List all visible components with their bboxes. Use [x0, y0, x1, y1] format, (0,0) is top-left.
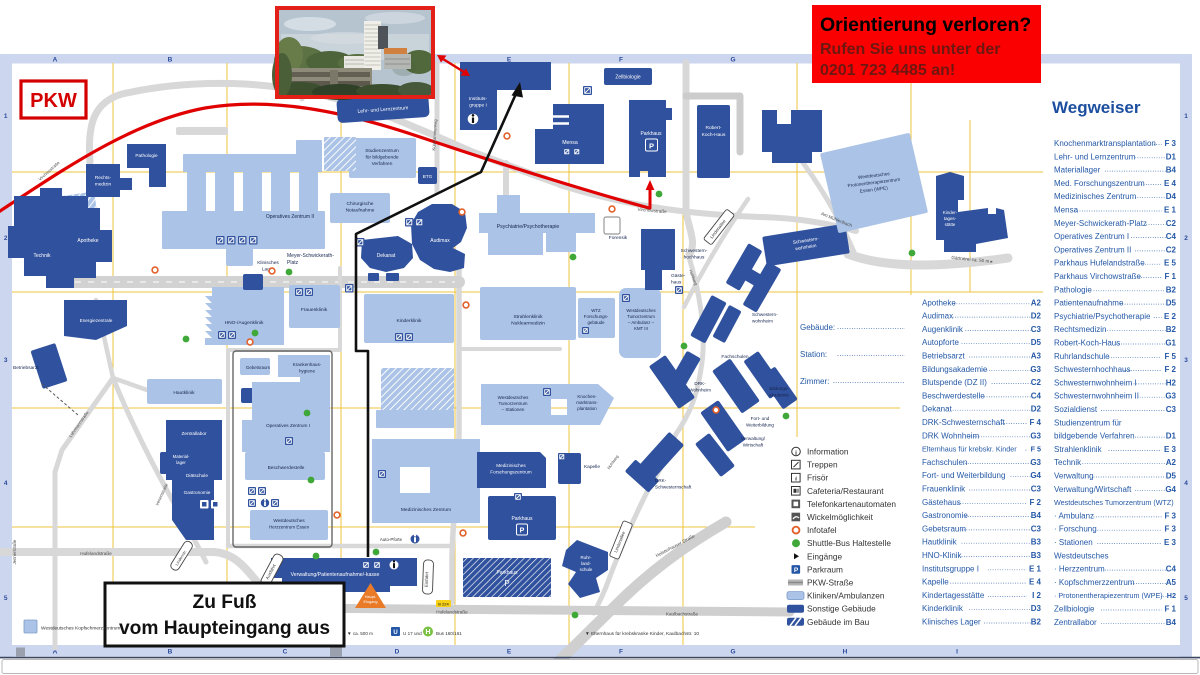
svg-text:Parkhaus: Parkhaus — [511, 516, 533, 522]
svg-text:Audimax: Audimax — [922, 312, 953, 321]
svg-text:▼ ca. 500 m: ▼ ca. 500 m — [347, 631, 373, 636]
svg-text:· Ambulanz: · Ambulanz — [1054, 511, 1094, 520]
svg-text:Auto-Pforte: Auto-Pforte — [380, 537, 403, 542]
svg-text:E: E — [507, 649, 512, 656]
svg-text:▼ Elternhaus für krebskranke K: ▼ Elternhaus für krebskranke Kinder, Kau… — [585, 631, 699, 637]
svg-text:G3: G3 — [1030, 458, 1041, 467]
svg-text:Energiezentrale: Energiezentrale — [80, 318, 113, 323]
svg-text:Pathologie: Pathologie — [1054, 285, 1092, 294]
svg-text:B4: B4 — [1031, 511, 1042, 520]
svg-text:medizin: medizin — [95, 182, 112, 187]
svg-text:C3: C3 — [1166, 405, 1177, 414]
svg-text:Kliniken/Ambulanzen: Kliniken/Ambulanzen — [807, 591, 885, 601]
svg-text:Med. Forschungszentrum: Med. Forschungszentrum — [1054, 179, 1145, 188]
svg-text:DRK-: DRK- — [655, 478, 667, 483]
svg-text:HNO-/Augenklinik: HNO-/Augenklinik — [225, 320, 264, 326]
svg-text:Westdeutsches Kopfschmerzzentr: Westdeutsches Kopfschmerzzentrum — [41, 626, 120, 632]
svg-text:B 224: B 224 — [438, 602, 449, 607]
svg-text:Fachschulen: Fachschulen — [721, 354, 749, 360]
svg-text:G4: G4 — [1165, 485, 1176, 494]
svg-text:D: D — [395, 649, 400, 656]
svg-text:D1: D1 — [1166, 432, 1177, 441]
svg-text:Rechtsmedizin: Rechtsmedizin — [1054, 325, 1106, 334]
svg-text:Parkhaus Hufelandstraße: Parkhaus Hufelandstraße — [1054, 259, 1145, 268]
svg-text:Patientenaufnahme: Patientenaufnahme — [1054, 299, 1124, 308]
svg-text:bildgebende Verfahren: bildgebende Verfahren — [1054, 432, 1135, 441]
svg-text:Gästehaus: Gästehaus — [922, 498, 961, 507]
svg-text:A2: A2 — [1031, 298, 1042, 307]
svg-text:2: 2 — [1184, 235, 1188, 242]
svg-text:für bildgebende: für bildgebende — [365, 155, 398, 161]
svg-text:Tumorzentrum: Tumorzentrum — [627, 314, 655, 319]
svg-text:Westdeutsches: Westdeutsches — [498, 395, 529, 400]
svg-text:hochhaus: hochhaus — [684, 255, 705, 261]
svg-text:Mensa: Mensa — [562, 140, 578, 146]
svg-text:1: 1 — [4, 113, 8, 120]
svg-text:Gäste-: Gäste- — [671, 273, 686, 279]
svg-text:land-: land- — [581, 561, 591, 566]
svg-text:PKW-Straße: PKW-Straße — [807, 578, 854, 588]
svg-text:Zentrallabor: Zentrallabor — [1054, 618, 1097, 627]
svg-text:Hautklinik: Hautklinik — [173, 390, 195, 396]
svg-text:akademie: akademie — [769, 393, 789, 398]
svg-text:Eingang: Eingang — [364, 600, 378, 604]
svg-text:Studienzentrum: Studienzentrum — [365, 148, 399, 154]
svg-text:Dekanat: Dekanat — [377, 253, 396, 259]
svg-text:Kaulbachstraße: Kaulbachstraße — [666, 612, 699, 617]
svg-text:Kapelle: Kapelle — [584, 464, 600, 470]
svg-text:Robert-: Robert- — [706, 125, 722, 131]
svg-text:U: U — [393, 630, 397, 636]
svg-text:Herzzentrum Essen: Herzzentrum Essen — [269, 525, 310, 530]
svg-text:Medizinisches Zentrum: Medizinisches Zentrum — [1054, 192, 1137, 201]
svg-text:Schwestern-: Schwestern- — [681, 248, 708, 254]
svg-text:F 5: F 5 — [1164, 352, 1176, 361]
svg-text:D3: D3 — [1031, 604, 1042, 613]
svg-text:E 3: E 3 — [1164, 538, 1177, 547]
svg-text:G3: G3 — [1030, 365, 1041, 374]
svg-text:Zimmer:: Zimmer: — [800, 377, 829, 386]
svg-text:Meyer-Schwickerath-: Meyer-Schwickerath- — [287, 253, 334, 259]
svg-text:Eingänge: Eingänge — [807, 551, 842, 561]
svg-text:5: 5 — [4, 595, 8, 602]
svg-text:stätte: stätte — [945, 222, 956, 227]
svg-text:Verwaltung/: Verwaltung/ — [741, 436, 766, 441]
svg-text:Sozialdienst: Sozialdienst — [1054, 405, 1098, 414]
svg-text:Nuklearmedizin: Nuklearmedizin — [511, 321, 545, 327]
svg-text:Hufelandstraße: Hufelandstraße — [436, 610, 468, 615]
svg-text:C3: C3 — [1031, 485, 1042, 494]
svg-text:Cafeteria/Restaurant: Cafeteria/Restaurant — [807, 486, 884, 496]
svg-text:Verwaltung: Verwaltung — [1054, 472, 1094, 481]
svg-text:Strahlenklinik: Strahlenklinik — [513, 314, 543, 320]
svg-text:Dekanat: Dekanat — [922, 405, 953, 414]
svg-text:Operatives Zentrum II: Operatives Zentrum II — [1054, 245, 1131, 254]
svg-text:Frisör: Frisör — [807, 473, 828, 483]
svg-text:D4: D4 — [1166, 192, 1177, 201]
svg-text:Material-: Material- — [173, 454, 190, 459]
svg-text:E 4: E 4 — [1029, 578, 1042, 587]
svg-text:Schwesternwohnheim I: Schwesternwohnheim I — [1054, 378, 1137, 387]
svg-text:Treppen: Treppen — [807, 460, 838, 470]
svg-text:Verwaltung/Wirtschaft: Verwaltung/Wirtschaft — [1054, 485, 1132, 494]
svg-text:D5: D5 — [1166, 299, 1177, 308]
svg-text:Materiallager: Materiallager — [1054, 166, 1101, 175]
svg-text:gebäude: gebäude — [587, 320, 605, 325]
svg-text:Medizinisches Zentrum: Medizinisches Zentrum — [401, 507, 451, 513]
svg-text:Elternhaus für krebskr. Kinder: Elternhaus für krebskr. Kinder — [922, 445, 1017, 454]
svg-text:Parkraum: Parkraum — [807, 564, 843, 574]
svg-text:C3: C3 — [1031, 524, 1042, 533]
svg-text:Beschwerdestelle: Beschwerdestelle — [268, 465, 305, 470]
svg-text:F 3: F 3 — [1164, 511, 1176, 520]
svg-text:Mensa: Mensa — [1054, 206, 1079, 215]
svg-text:Bildungs-: Bildungs- — [769, 386, 789, 391]
svg-text:D1: D1 — [1166, 152, 1177, 161]
svg-text:Lehr- und Lernzentrum: Lehr- und Lernzentrum — [1054, 152, 1136, 161]
svg-text:E 3: E 3 — [1164, 445, 1177, 454]
svg-text:E 4: E 4 — [1164, 179, 1177, 188]
svg-text:5: 5 — [1184, 595, 1188, 602]
svg-text:Zentrallabor: Zentrallabor — [181, 431, 206, 436]
svg-text:i: i — [795, 450, 797, 457]
svg-text:Klinisches: Klinisches — [257, 260, 279, 266]
svg-text:H: H — [425, 629, 430, 636]
svg-text:Verwaltung/Patientenaufnahme/-: Verwaltung/Patientenaufnahme/-kasse — [291, 572, 380, 578]
svg-text:B4: B4 — [1166, 618, 1177, 627]
svg-text:F 4: F 4 — [1029, 418, 1041, 427]
svg-text:Strahlenklinik: Strahlenklinik — [1054, 445, 1103, 454]
svg-text:Kindertagesstätte: Kindertagesstätte — [922, 591, 985, 600]
svg-text:D5: D5 — [1166, 472, 1177, 481]
svg-text:WTZ: WTZ — [591, 308, 601, 313]
svg-text:B3: B3 — [1031, 551, 1042, 560]
svg-text:· Forschung: · Forschung — [1054, 525, 1097, 534]
svg-text:Augenklinik: Augenklinik — [922, 325, 964, 334]
svg-text:· Stationen: · Stationen — [1054, 538, 1093, 547]
svg-text:D2: D2 — [1031, 405, 1042, 414]
svg-text:F 2: F 2 — [1164, 365, 1176, 374]
svg-text:Kinderklinik: Kinderklinik — [396, 318, 422, 324]
svg-text:Fort- und Weiterbildung: Fort- und Weiterbildung — [922, 471, 1005, 480]
svg-text:Schwesternwohnheim II: Schwesternwohnheim II — [1054, 392, 1139, 401]
svg-text:D2: D2 — [1031, 312, 1042, 321]
svg-text:Westdeutsches: Westdeutsches — [626, 308, 655, 313]
svg-text:H: H — [843, 649, 848, 656]
svg-text:Shuttle-Bus Haltestelle: Shuttle-Bus Haltestelle — [807, 538, 891, 548]
svg-text:G1: G1 — [1165, 339, 1176, 348]
svg-text:Haupt-: Haupt- — [365, 595, 377, 599]
svg-text:schule: schule — [580, 567, 593, 572]
svg-text:Schwestern-: Schwestern- — [752, 312, 778, 317]
svg-text:Hautklinik: Hautklinik — [922, 538, 958, 547]
svg-text:Tumorzentrum: Tumorzentrum — [498, 401, 527, 406]
svg-text:Operatives Zentrum I: Operatives Zentrum I — [1054, 232, 1129, 241]
svg-text:Medizinisches: Medizinisches — [496, 463, 526, 468]
svg-text:Notaufnahme: Notaufnahme — [346, 208, 375, 214]
svg-text:F 1: F 1 — [1164, 272, 1176, 281]
svg-text:Zellbiologie: Zellbiologie — [1054, 605, 1095, 614]
svg-text:Apotheke: Apotheke — [922, 298, 956, 307]
svg-text:Technik: Technik — [1054, 458, 1082, 467]
svg-text:haus: haus — [671, 280, 682, 286]
svg-text:B2: B2 — [1166, 285, 1177, 294]
svg-text:Bildungsakademie: Bildungsakademie — [922, 365, 988, 374]
svg-text:Weiterbildung: Weiterbildung — [746, 423, 774, 428]
svg-text:Westdeutsches Tumorzentrum (WT: Westdeutsches Tumorzentrum (WTZ) — [1054, 498, 1174, 507]
svg-text:C2: C2 — [1166, 219, 1177, 228]
svg-text:F: F — [619, 649, 623, 656]
svg-text:C3: C3 — [1031, 325, 1042, 334]
svg-text:F 3: F 3 — [1164, 139, 1176, 148]
svg-text:Beschwerdestelle: Beschwerdestelle — [922, 391, 985, 400]
svg-text:Klinisches Lager: Klinisches Lager — [922, 618, 981, 627]
svg-text:Jennerstraße: Jennerstraße — [12, 539, 17, 564]
svg-text:tages-: tages- — [944, 216, 957, 221]
svg-text:Ruhr-: Ruhr- — [581, 555, 593, 560]
svg-text:Kinder-: Kinder- — [943, 210, 958, 215]
svg-text:G3: G3 — [1030, 431, 1041, 440]
svg-text:Gastronomie: Gastronomie — [184, 490, 211, 495]
svg-text:marktrans-: marktrans- — [576, 400, 598, 405]
svg-text:2: 2 — [4, 235, 8, 242]
svg-text:0201 723 4485 an!: 0201 723 4485 an! — [820, 62, 955, 79]
svg-text:G3: G3 — [1165, 392, 1176, 401]
svg-text:Parkhaus: Parkhaus — [640, 131, 662, 137]
svg-text:Frauenklinik: Frauenklinik — [301, 307, 328, 313]
svg-text:Frauenklinik: Frauenklinik — [922, 485, 966, 494]
svg-text:Robert-Koch-Haus: Robert-Koch-Haus — [1054, 339, 1120, 348]
svg-text:Wegweiser: Wegweiser — [1052, 98, 1141, 117]
svg-text:F: F — [619, 56, 623, 63]
svg-text:Betriebsarzt: Betriebsarzt — [13, 365, 39, 371]
svg-text:Knochen-: Knochen- — [577, 394, 597, 399]
svg-text:plantation: plantation — [577, 406, 597, 411]
svg-text:Operatives Zentrum II: Operatives Zentrum II — [266, 214, 314, 220]
svg-text:Schwesternhochhaus: Schwesternhochhaus — [1054, 365, 1131, 374]
svg-text:Information: Information — [807, 447, 849, 457]
svg-text:F 5: F 5 — [1031, 445, 1041, 454]
svg-text:Wickelmöglichkeit: Wickelmöglichkeit — [807, 512, 874, 522]
svg-text:KMT III: KMT III — [634, 326, 648, 331]
svg-text:Station:: Station: — [800, 350, 827, 359]
svg-text:– Stationen: – Stationen — [502, 407, 525, 412]
svg-text:DRK Wohnheim: DRK Wohnheim — [922, 431, 980, 440]
svg-text:Hufelandstraße: Hufelandstraße — [80, 551, 112, 556]
svg-text:Chirurgische: Chirurgische — [347, 201, 374, 207]
svg-text:lager: lager — [176, 460, 186, 465]
svg-text:A: A — [53, 56, 58, 63]
svg-text:Instituts-: Instituts- — [469, 96, 488, 102]
svg-text:Fachschulen: Fachschulen — [922, 458, 967, 467]
svg-text:Blutspende (DZ II): Blutspende (DZ II) — [922, 378, 987, 387]
svg-text:4: 4 — [1184, 480, 1188, 487]
svg-text:Psychiatrie/Psychotherapie: Psychiatrie/Psychotherapie — [1054, 312, 1151, 321]
svg-text:G: G — [730, 56, 735, 63]
svg-text:A5: A5 — [1166, 578, 1177, 587]
svg-text:B4: B4 — [1166, 166, 1177, 175]
svg-text:Krankenhaus-: Krankenhaus- — [293, 362, 322, 367]
svg-text:Platz: Platz — [287, 260, 299, 266]
svg-text:Parkhaus: Parkhaus — [496, 570, 518, 576]
svg-text:Autopforte: Autopforte — [922, 338, 959, 347]
svg-text:Telefonkartenautomaten: Telefonkartenautomaten — [807, 499, 896, 509]
svg-text:E 5: E 5 — [1164, 259, 1177, 268]
svg-text:Gebäude:: Gebäude: — [800, 323, 835, 332]
svg-text:Zellbiologie: Zellbiologie — [615, 75, 641, 81]
svg-text:P: P — [520, 528, 525, 535]
svg-text:3: 3 — [1184, 357, 1188, 364]
svg-text:Operatives Zentrum I: Operatives Zentrum I — [266, 423, 310, 428]
svg-text:H2: H2 — [1166, 378, 1177, 387]
svg-text:Zu Fuß: Zu Fuß — [193, 592, 257, 613]
svg-text:Pathologie: Pathologie — [135, 153, 158, 158]
svg-text:· Kopfschmerzzentrum: · Kopfschmerzzentrum — [1054, 578, 1135, 587]
svg-text:P: P — [794, 567, 799, 574]
svg-text:DRK-Schwesternschaft: DRK-Schwesternschaft — [922, 418, 1005, 427]
svg-text:Schwesternschaft: Schwesternschaft — [655, 485, 692, 490]
svg-text:Bus 160/161: Bus 160/161 — [436, 631, 462, 636]
svg-text:Gebetsraum: Gebetsraum — [922, 524, 966, 533]
svg-text:· Herzzentrum: · Herzzentrum — [1054, 565, 1105, 574]
svg-text:PKW: PKW — [30, 90, 77, 112]
svg-text:E 1: E 1 — [1029, 564, 1042, 573]
svg-text:Sonstige Gebäude: Sonstige Gebäude — [807, 604, 876, 614]
svg-text:Infotafel: Infotafel — [807, 525, 837, 535]
svg-text:Kapelle: Kapelle — [922, 578, 949, 587]
svg-text:P: P — [649, 142, 654, 151]
svg-text:C4: C4 — [1166, 232, 1177, 241]
svg-text:C2: C2 — [1031, 378, 1042, 387]
svg-text:F 3: F 3 — [1164, 525, 1176, 534]
svg-text:C2: C2 — [1166, 245, 1177, 254]
svg-text:U 17 und: U 17 und — [403, 631, 422, 636]
svg-text:wohnheim: wohnheim — [752, 319, 773, 324]
svg-text:I 2: I 2 — [1032, 591, 1041, 600]
svg-text:· Protonentherapiezentrum (WPE: · Protonentherapiezentrum (WPE) — [1054, 591, 1163, 600]
svg-text:Kinderklinik: Kinderklinik — [922, 604, 964, 613]
svg-text:D5: D5 — [1031, 338, 1042, 347]
svg-text:A2: A2 — [1166, 458, 1177, 467]
svg-text:Verfahren: Verfahren — [372, 161, 393, 167]
svg-text:E 2: E 2 — [1164, 312, 1177, 321]
svg-text:Koch-Haus: Koch-Haus — [702, 132, 726, 138]
svg-text:Gastronomie: Gastronomie — [922, 511, 968, 520]
svg-text:F 2: F 2 — [1029, 498, 1041, 507]
svg-text:Gebetsraum: Gebetsraum — [246, 365, 271, 370]
svg-text:– Ambulanz –: – Ambulanz – — [628, 320, 655, 325]
svg-text:Knochenmarktransplantation: Knochenmarktransplantation — [1054, 139, 1156, 148]
svg-text:Wirtschaft: Wirtschaft — [743, 443, 764, 448]
svg-text:B2: B2 — [1031, 618, 1042, 627]
svg-text:Forensik: Forensik — [609, 235, 628, 241]
svg-text:Fort- und: Fort- und — [751, 416, 770, 421]
svg-text:A3: A3 — [1031, 352, 1042, 361]
svg-text:Diätschule: Diätschule — [186, 473, 208, 478]
svg-text:B2: B2 — [1166, 325, 1177, 334]
svg-text:Parkhaus Virchowstraße: Parkhaus Virchowstraße — [1054, 272, 1142, 281]
svg-text:I: I — [956, 649, 958, 656]
svg-text:B: B — [168, 649, 173, 656]
svg-text:gruppe I: gruppe I — [469, 103, 487, 109]
svg-text:HNO-Klinik: HNO-Klinik — [922, 551, 963, 560]
svg-text:C: C — [283, 649, 288, 656]
svg-text:vom Haupteingang aus: vom Haupteingang aus — [119, 618, 330, 639]
svg-text:DRK-: DRK- — [694, 381, 706, 386]
svg-text:Ruhrlandschule: Ruhrlandschule — [1054, 352, 1110, 361]
svg-text:Rechts-: Rechts- — [95, 175, 112, 180]
svg-text:Technik: Technik — [34, 253, 51, 259]
svg-text:Westdeutsches: Westdeutsches — [273, 518, 305, 523]
svg-text:C4: C4 — [1166, 565, 1177, 574]
svg-text:hygiene: hygiene — [299, 369, 316, 374]
svg-text:Meyer-Schwickerath-Platz: Meyer-Schwickerath-Platz — [1054, 219, 1147, 228]
svg-text:Institutsgruppe I: Institutsgruppe I — [922, 564, 979, 573]
svg-text:Audimax: Audimax — [430, 238, 450, 244]
svg-text:ıl: ıl — [795, 476, 798, 482]
svg-text:E 1: E 1 — [1164, 206, 1177, 215]
svg-text:3: 3 — [4, 357, 8, 364]
svg-text:Betriebsarzt: Betriebsarzt — [922, 352, 965, 361]
svg-text:Rufen Sie uns unter der: Rufen Sie uns unter der — [820, 41, 1000, 58]
svg-text:C4: C4 — [1031, 391, 1042, 400]
svg-text:Einfahrt: Einfahrt — [424, 571, 430, 587]
svg-text:BTG: BTG — [423, 174, 433, 179]
svg-text:Apotheke: Apotheke — [77, 238, 98, 244]
svg-text:P: P — [504, 579, 509, 588]
svg-text:Forschungszentrum: Forschungszentrum — [490, 470, 532, 475]
svg-text:Wohnheim: Wohnheim — [689, 388, 711, 393]
svg-text:Orientierung verloren?: Orientierung verloren? — [820, 14, 1031, 36]
svg-text:B3: B3 — [1031, 538, 1042, 547]
svg-text:Psychiatrie/Psychotherapie: Psychiatrie/Psychotherapie — [497, 224, 560, 230]
svg-text:Studienzentrum für: Studienzentrum für — [1054, 418, 1122, 427]
svg-text:1: 1 — [1184, 113, 1188, 120]
svg-text:B: B — [168, 56, 173, 63]
svg-text:Gebäude im Bau: Gebäude im Bau — [807, 617, 870, 627]
svg-text:H2: H2 — [1167, 591, 1176, 600]
svg-text:G: G — [730, 649, 735, 656]
svg-text:F 1: F 1 — [1164, 605, 1176, 614]
svg-text:Westdeutsches: Westdeutsches — [1054, 551, 1109, 560]
svg-text:G4: G4 — [1030, 471, 1041, 480]
svg-text:4: 4 — [4, 480, 8, 487]
svg-text:Forschungs-: Forschungs- — [584, 314, 609, 319]
